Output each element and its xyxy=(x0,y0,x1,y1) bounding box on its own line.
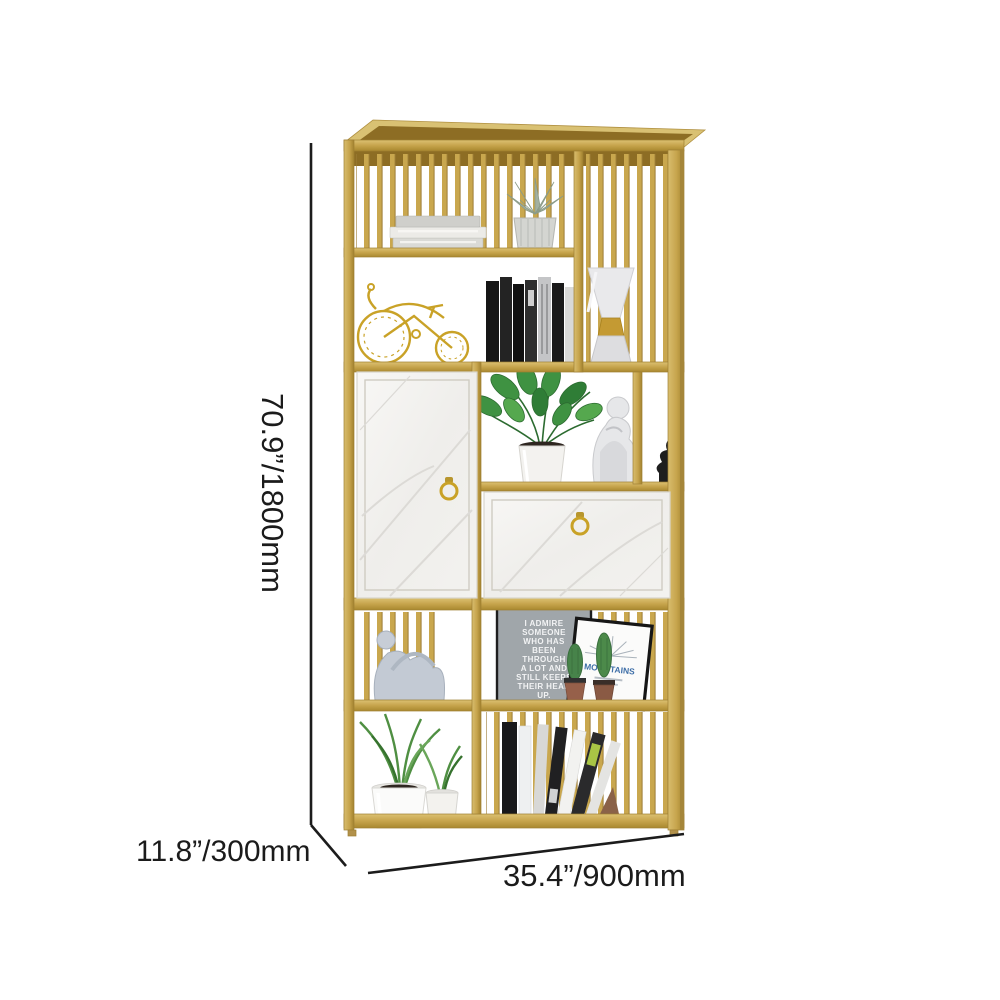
height-dimension-label: 70.9”/1800mm xyxy=(254,393,290,593)
quote-line: THEIR HEAD xyxy=(518,682,571,691)
slats-right-column xyxy=(586,154,668,364)
quote-line: STILL KEEPS xyxy=(516,673,572,682)
shelf-rail-3 xyxy=(476,482,684,491)
quote-line: BEEN xyxy=(532,646,556,655)
marble-drawer-front xyxy=(484,492,670,598)
width-dimension-label: 35.4”/900mm xyxy=(503,858,686,894)
shelf-rail-2 xyxy=(344,362,684,372)
shelf-rail-4 xyxy=(344,598,684,610)
grass-plants-pots xyxy=(360,714,462,828)
quote-line: SOMEONE xyxy=(522,628,566,637)
bottom-rail xyxy=(344,814,684,828)
black-books-row xyxy=(486,277,575,362)
shelf-rail-5 xyxy=(344,700,684,711)
foot-left xyxy=(348,830,356,836)
quote-line: I ADMIRE xyxy=(525,619,564,628)
depth-dimension-line xyxy=(311,825,346,866)
book-stack xyxy=(390,216,486,248)
shelf-rail-1 xyxy=(344,248,580,257)
quote-line: WHO HAS xyxy=(523,637,565,646)
green-plant-pot xyxy=(469,361,605,488)
marble-cabinet-door xyxy=(357,372,477,598)
depth-dimension-label: 11.8”/300mm xyxy=(136,835,311,869)
divider-upper xyxy=(574,151,583,372)
left-post xyxy=(344,140,354,830)
quote-line: A LOT AND xyxy=(521,664,568,673)
product-dimension-image: I ADMIRE SOMEONE WHO HAS BEEN THROUGH A … xyxy=(0,0,1000,1000)
divider-tier3 xyxy=(633,372,642,484)
quote-line: UP. xyxy=(537,691,551,700)
bicycle-decor xyxy=(358,284,468,364)
top-rail xyxy=(344,140,684,151)
quote-line: THROUGH xyxy=(522,655,565,664)
